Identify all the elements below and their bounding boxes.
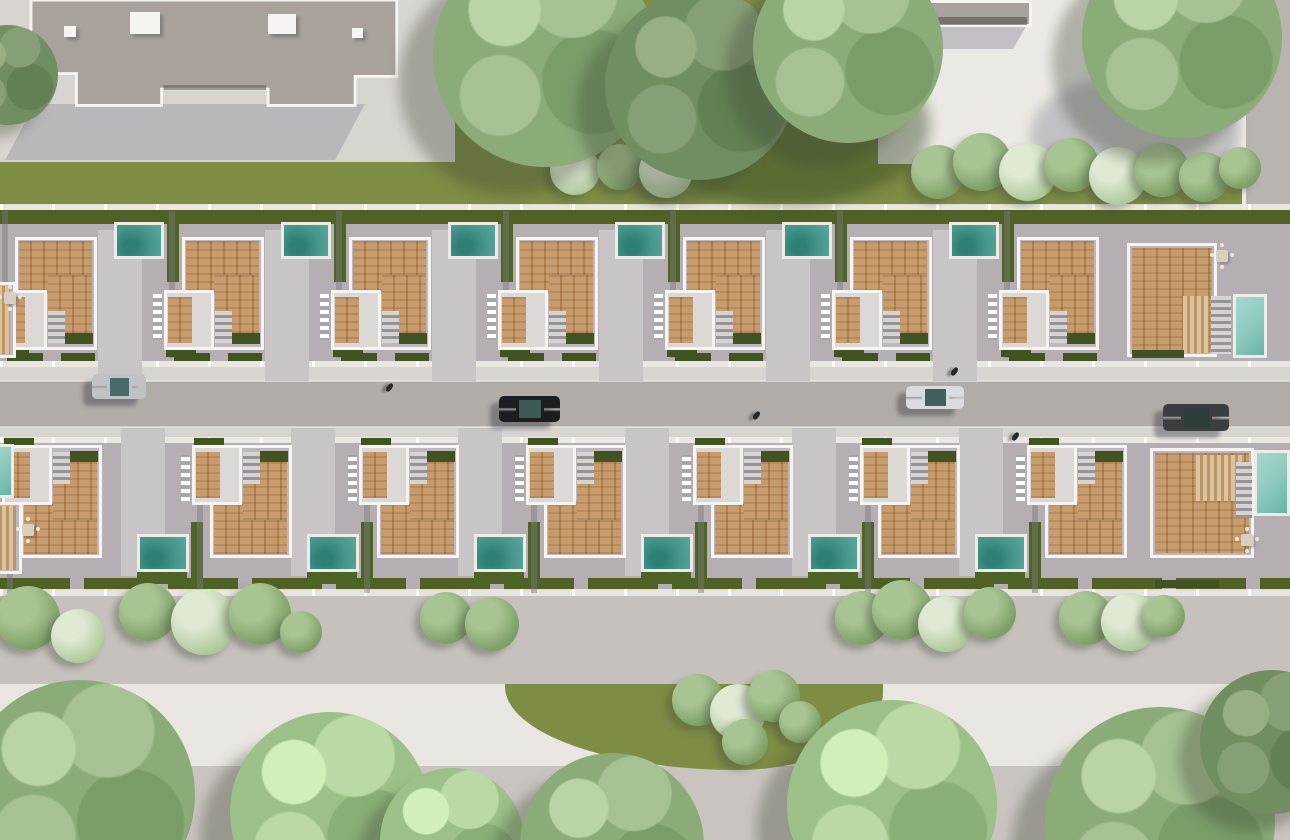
villa-hedge <box>566 333 594 344</box>
end-villa-top-stairs <box>1211 296 1231 354</box>
lot-grass-back <box>137 571 187 584</box>
shrub <box>119 583 177 641</box>
front-hedge <box>896 353 930 361</box>
pergola-louvers <box>320 294 329 340</box>
villa-hedge <box>695 438 725 445</box>
pergola-louvers <box>988 294 997 340</box>
car-windows <box>922 389 949 406</box>
shrub <box>1219 147 1261 189</box>
villa-stairs <box>911 452 928 484</box>
annex-deck <box>335 297 359 343</box>
shrub <box>1143 595 1185 637</box>
villa-hedge <box>166 350 196 357</box>
patio-chair <box>1210 253 1214 257</box>
patio-table <box>1216 250 1228 262</box>
villa-hedge <box>232 333 260 344</box>
villa-stairs <box>243 452 260 484</box>
silver-car <box>92 374 146 399</box>
villa-stairs <box>549 311 566 343</box>
front-hedge <box>228 353 262 361</box>
villa-hedge <box>928 451 956 462</box>
front-hedge <box>395 353 429 361</box>
lot-grass-back <box>641 571 691 584</box>
sidewalk-road-north <box>0 367 1290 381</box>
villa <box>182 237 264 350</box>
villa <box>377 445 459 558</box>
villa <box>544 445 626 558</box>
villa-hedge <box>65 333 93 344</box>
swimming-pool <box>114 222 164 259</box>
annex-deck <box>196 452 220 498</box>
roof-vent <box>130 12 160 34</box>
small-building-shade <box>933 17 1027 25</box>
car-windows <box>107 378 132 396</box>
front-hedge <box>1063 353 1097 361</box>
villa <box>349 237 431 350</box>
swimming-pool <box>307 534 359 572</box>
swimming-pool <box>949 222 999 259</box>
annex-deck <box>502 297 526 343</box>
lot-grass-back <box>975 571 1025 584</box>
car-windows <box>1181 408 1211 427</box>
annex-deck <box>836 297 860 343</box>
black-car <box>499 396 560 422</box>
villa <box>15 237 97 350</box>
front-hedge <box>729 353 763 361</box>
villa <box>516 237 598 350</box>
patio-chair <box>36 527 40 531</box>
lot-grass-back <box>808 571 858 584</box>
apartment-roof-recess-shadow <box>164 85 267 90</box>
villa-stairs <box>577 452 594 484</box>
villa-hedge <box>1067 333 1095 344</box>
swimming-pool <box>782 222 832 259</box>
villa-hedge <box>1029 438 1059 445</box>
villa-stairs <box>883 311 900 343</box>
shrub <box>465 597 519 651</box>
swimming-pool <box>641 534 693 572</box>
end-pool-top <box>1233 294 1267 358</box>
patio-chair <box>1245 527 1249 531</box>
end-pool-bottom <box>1254 450 1290 516</box>
front-hedge <box>61 353 95 361</box>
lawn-strip-left <box>0 162 462 205</box>
end-hedge-top <box>1132 350 1184 358</box>
villa-hedge <box>900 333 928 344</box>
flowering-shrub <box>171 589 237 655</box>
patio-chair <box>1230 253 1234 257</box>
shrub <box>280 611 322 653</box>
pergola-louvers <box>1016 455 1025 501</box>
front-hedge <box>562 353 596 361</box>
patio-chair <box>26 539 30 543</box>
roof-vent <box>268 14 296 34</box>
roof-vent <box>64 26 76 37</box>
apartment-building-roof <box>0 0 420 120</box>
patio-chair <box>1245 549 1249 553</box>
road-asphalt <box>0 381 1290 427</box>
patio-chair <box>1220 243 1224 247</box>
shrub <box>420 592 472 644</box>
villa-stairs <box>716 311 733 343</box>
villa-stairs <box>744 452 761 484</box>
villa <box>683 237 765 350</box>
villa-hedge <box>528 438 558 445</box>
curb-road-north <box>0 380 1290 382</box>
villa-hedge <box>667 350 697 357</box>
pergola-louvers <box>682 455 691 501</box>
villa-hedge <box>361 438 391 445</box>
patio-chair <box>1235 537 1239 541</box>
villa-stairs <box>1050 311 1067 343</box>
villa-hedge <box>399 333 427 344</box>
villa-stairs <box>53 452 70 484</box>
patio-table <box>4 292 16 304</box>
pergola-louvers <box>821 294 830 340</box>
annex-deck <box>168 297 192 343</box>
end-hedge-bottom <box>1155 580 1219 588</box>
pergola-louvers <box>487 294 496 340</box>
villa-hedge <box>70 451 98 462</box>
partial-deck-bottom-left <box>0 506 16 570</box>
villa-hedge <box>733 333 761 344</box>
white-car <box>906 386 964 409</box>
villa-stairs <box>215 311 232 343</box>
lot-grass-back <box>474 571 524 584</box>
patio-chair <box>16 527 20 531</box>
villa <box>850 237 932 350</box>
patio-chair <box>1220 265 1224 269</box>
pergola-louvers <box>654 294 663 340</box>
villa <box>20 445 102 558</box>
patio-chair <box>8 307 12 311</box>
shrub <box>964 587 1016 639</box>
annex-deck <box>669 297 693 343</box>
flowering-shrub <box>51 609 105 663</box>
annex-deck <box>1003 297 1027 343</box>
villa-hedge <box>1095 451 1123 462</box>
swimming-pool <box>448 222 498 259</box>
partial-pool-bottom-left <box>0 444 14 498</box>
villa-hedge <box>862 438 892 445</box>
roof-vent <box>352 28 363 38</box>
villa-hedge <box>1001 350 1031 357</box>
patio-chair <box>8 285 12 289</box>
lot-grass-back <box>307 571 357 584</box>
pergola-louvers <box>515 455 524 501</box>
end-villa-top-pergola <box>1183 296 1209 353</box>
villa-stairs <box>410 452 427 484</box>
swimming-pool <box>808 534 860 572</box>
pergola-louvers <box>348 455 357 501</box>
patio-chair <box>18 295 22 299</box>
villa-hedge <box>333 350 363 357</box>
villa-hedge <box>427 451 455 462</box>
villa-hedge <box>260 451 288 462</box>
villa-hedge <box>194 438 224 445</box>
villa-hedge <box>594 451 622 462</box>
patio-table <box>22 524 34 536</box>
villa <box>878 445 960 558</box>
villa-hedge <box>834 350 864 357</box>
pergola-louvers <box>153 294 162 340</box>
pergola-louvers <box>181 455 190 501</box>
swimming-pool <box>975 534 1027 572</box>
villa <box>711 445 793 558</box>
annex-deck <box>363 452 387 498</box>
patio-chair <box>1255 537 1259 541</box>
annex-deck <box>1031 452 1055 498</box>
villa <box>1045 445 1127 558</box>
swimming-pool <box>615 222 665 259</box>
shrub <box>722 719 768 765</box>
annex-deck <box>530 452 554 498</box>
villa-stairs <box>382 311 399 343</box>
aerial-render-scene: Aerial 3D render of a residential develo… <box>0 0 1290 840</box>
end-villa-bottom-stairs <box>1236 462 1252 518</box>
swimming-pool <box>281 222 331 259</box>
patio-chair <box>26 517 30 521</box>
villa <box>210 445 292 558</box>
grey-car <box>1163 404 1229 431</box>
pergola-louvers <box>849 455 858 501</box>
villa-stairs <box>1078 452 1095 484</box>
annex-deck <box>864 452 888 498</box>
villa-hedge <box>761 451 789 462</box>
villa-hedge <box>500 350 530 357</box>
swimming-pool <box>137 534 189 572</box>
patio-table <box>1241 534 1253 546</box>
villa-stairs <box>48 311 65 343</box>
villa <box>1017 237 1099 350</box>
swimming-pool <box>474 534 526 572</box>
annex-deck <box>697 452 721 498</box>
car-windows <box>516 400 544 419</box>
